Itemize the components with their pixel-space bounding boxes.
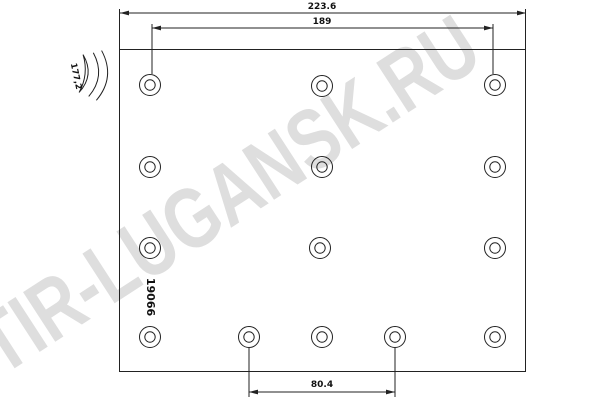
rivet-hole [385,327,406,348]
arrowhead-right-icon [386,390,395,395]
arrowhead-right-icon [484,26,493,31]
rivet-hole [140,327,161,348]
dim-top-hole-span-label: 189 [292,17,352,27]
rivet-hole [312,157,333,178]
rivet-hole [485,238,506,259]
rivet-hole [485,75,506,96]
arrowhead-left-icon [120,11,129,16]
brake-lining-technical-drawing: TIR-LUGANSK.RU [0,0,600,400]
lining-outline [120,50,526,372]
rivet-hole [140,75,161,96]
part-number-label: 19066 [144,275,156,319]
rivet-hole [312,327,333,348]
rivet-hole [485,327,506,348]
rivet-hole [485,157,506,178]
rivet-hole [140,238,161,259]
arrowhead-left-icon [249,390,258,395]
arrowhead-right-icon [517,11,526,16]
rivet-hole [140,157,161,178]
dim-bottom-hole-span-label: 80.4 [292,380,352,390]
rivet-hole [310,238,331,259]
rivet-hole [312,76,333,97]
dim-overall-width-label: 223.6 [292,2,352,12]
arrowhead-left-icon [152,26,161,31]
drawing-linework [0,0,600,400]
rivet-hole [239,327,260,348]
